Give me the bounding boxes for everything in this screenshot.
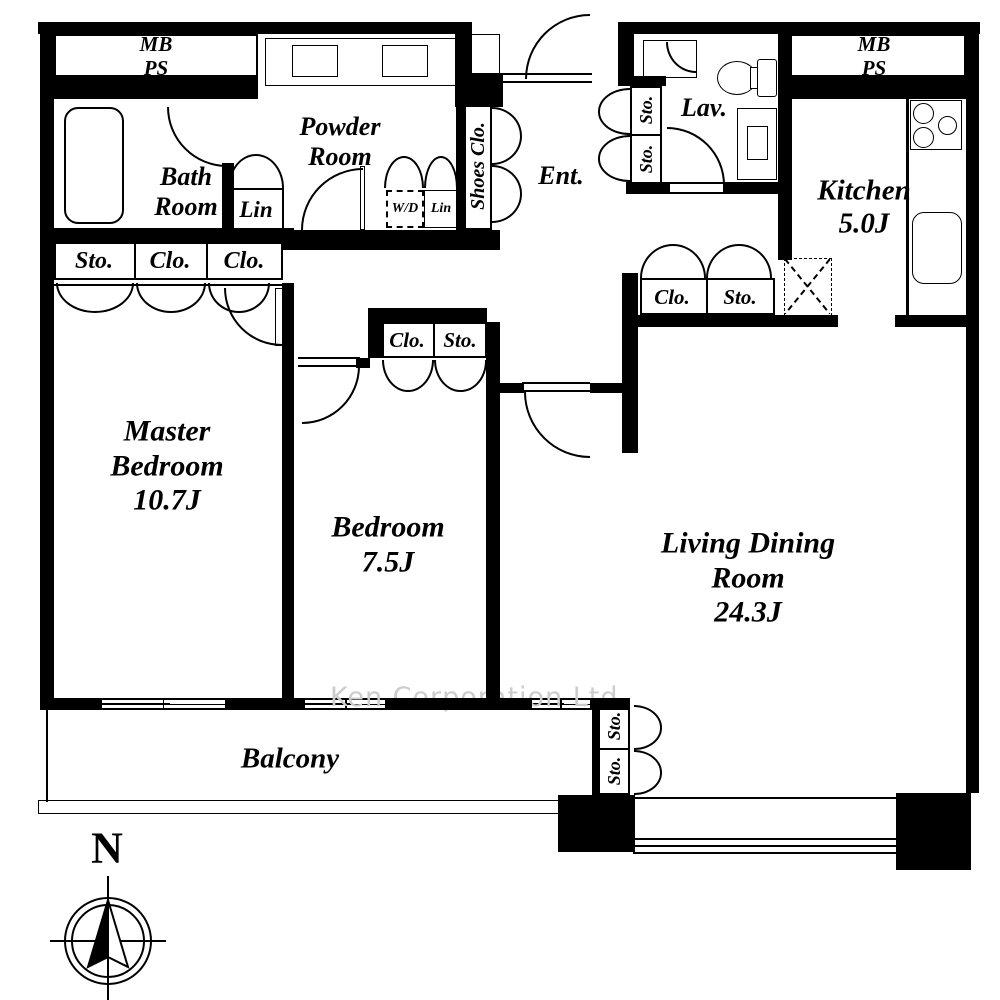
closet-divider xyxy=(598,748,630,750)
compass-north-label: N xyxy=(91,824,123,875)
bifold-door-arc xyxy=(95,283,134,313)
closet-divider xyxy=(206,242,208,280)
room-label-powder: Powder Room xyxy=(300,112,381,172)
wall xyxy=(368,308,487,322)
wall xyxy=(590,383,624,393)
wash-basin-icon xyxy=(382,45,428,77)
bifold-door-arc xyxy=(634,705,662,728)
vanity-basin-icon xyxy=(747,126,768,160)
closet-label-shoes: Shoes Clo. xyxy=(468,122,488,210)
closet-divider xyxy=(706,278,708,315)
refrigerator-space-icon xyxy=(784,258,832,316)
wall xyxy=(40,34,54,710)
room-label-master-bedroom: Master Bedroom 10.7J xyxy=(110,414,223,518)
bifold-door-arc xyxy=(634,728,662,751)
bifold-door-arc xyxy=(492,165,522,194)
balcony-side-line xyxy=(46,710,48,802)
bifold-door-arc xyxy=(228,154,256,188)
bifold-door-arc xyxy=(598,88,630,112)
wall xyxy=(40,698,102,710)
wall xyxy=(225,698,305,710)
ldr-doorway xyxy=(522,382,590,392)
bifold-door-arc xyxy=(598,159,630,183)
bifold-door-arc xyxy=(673,244,706,278)
room-label-balcony: Balcony xyxy=(241,742,339,775)
door-swing-arc xyxy=(301,168,363,230)
railing-line xyxy=(633,797,896,799)
room-label-entrance: Ent. xyxy=(538,161,584,191)
wall xyxy=(40,228,294,242)
wall xyxy=(622,273,638,453)
room-label-lav: Lav. xyxy=(681,93,727,123)
room-label-bedroom: Bedroom 7.5J xyxy=(331,511,444,580)
closet-label-upper-sto1: Sto. xyxy=(637,96,655,125)
master-bedroom-window xyxy=(100,698,225,710)
door-swing-arc xyxy=(667,127,725,185)
wall xyxy=(778,34,792,260)
bifold-door-arc xyxy=(424,156,441,188)
kitchen-sink-icon xyxy=(912,212,962,284)
railing-line xyxy=(633,838,896,840)
door-swing-arc xyxy=(302,366,360,424)
wall xyxy=(38,22,472,34)
door-swing-arc xyxy=(524,392,590,458)
floor-plan: N Master Bedroom 10.7J Bedroom 7.5J Livi… xyxy=(0,0,1000,1000)
railing-line xyxy=(633,845,896,847)
closet-divider xyxy=(134,242,136,280)
wall xyxy=(385,698,532,710)
bifold-door-arc xyxy=(382,360,408,392)
wash-basin-icon xyxy=(292,45,338,77)
kitchen-counter-edge xyxy=(906,99,909,317)
wall xyxy=(368,308,382,358)
bifold-door-arc xyxy=(492,136,522,165)
door-swing-arc xyxy=(525,14,590,79)
wall xyxy=(895,315,966,327)
closet-row-box xyxy=(54,242,283,280)
wall xyxy=(618,34,634,82)
closet-label-lower-sto1: Sto. xyxy=(605,712,623,741)
wall xyxy=(54,77,258,99)
closet-divider xyxy=(630,134,662,136)
wall xyxy=(782,77,966,99)
bifold-door-arc xyxy=(408,360,434,392)
wall xyxy=(618,76,666,86)
wall xyxy=(282,283,294,710)
bifold-door-arc xyxy=(461,360,488,392)
closet-label-upper-sto2: Sto. xyxy=(637,145,655,174)
balcony-outer-edge xyxy=(38,800,562,814)
porch-meter-box xyxy=(469,34,500,74)
bifold-door-arc xyxy=(256,154,284,188)
room-label-living-dining: Living Dining Room 24.3J xyxy=(622,526,874,630)
mb-ps-box-left xyxy=(54,34,258,77)
compass-needle-icon xyxy=(78,895,138,975)
railing-line xyxy=(633,852,896,854)
door-swing-arc xyxy=(167,107,227,167)
burner-icon xyxy=(913,127,934,148)
bifold-door-arc xyxy=(634,773,662,796)
wall xyxy=(456,103,464,233)
wall xyxy=(486,322,500,710)
bifold-door-arc xyxy=(136,283,171,313)
bifold-door-arc xyxy=(492,107,522,136)
linen-closet-box xyxy=(228,188,284,232)
bifold-door-arc xyxy=(434,360,461,392)
wall xyxy=(592,700,600,797)
room-label-kitchen: Kitchen 5.0J xyxy=(817,175,910,242)
bifold-door-arc xyxy=(208,283,239,313)
bifold-door-arc xyxy=(404,156,424,188)
bifold-door-arc xyxy=(598,112,630,136)
bifold-door-arc xyxy=(56,283,95,313)
wall xyxy=(618,22,980,34)
bathtub-icon xyxy=(64,107,124,224)
bifold-door-arc xyxy=(171,283,206,313)
wall xyxy=(283,230,500,250)
wall xyxy=(626,315,838,327)
room-label-bath: Bath Room xyxy=(154,162,218,222)
linen-small-box xyxy=(424,190,458,228)
bifold-door-arc xyxy=(384,156,404,188)
wall xyxy=(500,383,524,393)
wall xyxy=(966,34,979,793)
mb-ps-box-right xyxy=(782,34,966,77)
burner-icon xyxy=(938,116,957,135)
wall xyxy=(558,795,635,852)
washer-dryer-space-icon xyxy=(386,190,424,228)
wall xyxy=(896,793,971,870)
bifold-door-arc xyxy=(634,750,662,773)
closet-divider xyxy=(433,322,435,358)
closet-label-lower-sto2: Sto. xyxy=(605,757,623,786)
burner-icon xyxy=(913,103,934,124)
bifold-door-arc xyxy=(706,244,739,278)
bifold-door-arc xyxy=(492,194,522,223)
bifold-door-arc xyxy=(739,244,772,278)
bifold-door-arc xyxy=(640,244,673,278)
toilet-tank-icon xyxy=(757,59,777,97)
bifold-door-arc xyxy=(598,135,630,159)
